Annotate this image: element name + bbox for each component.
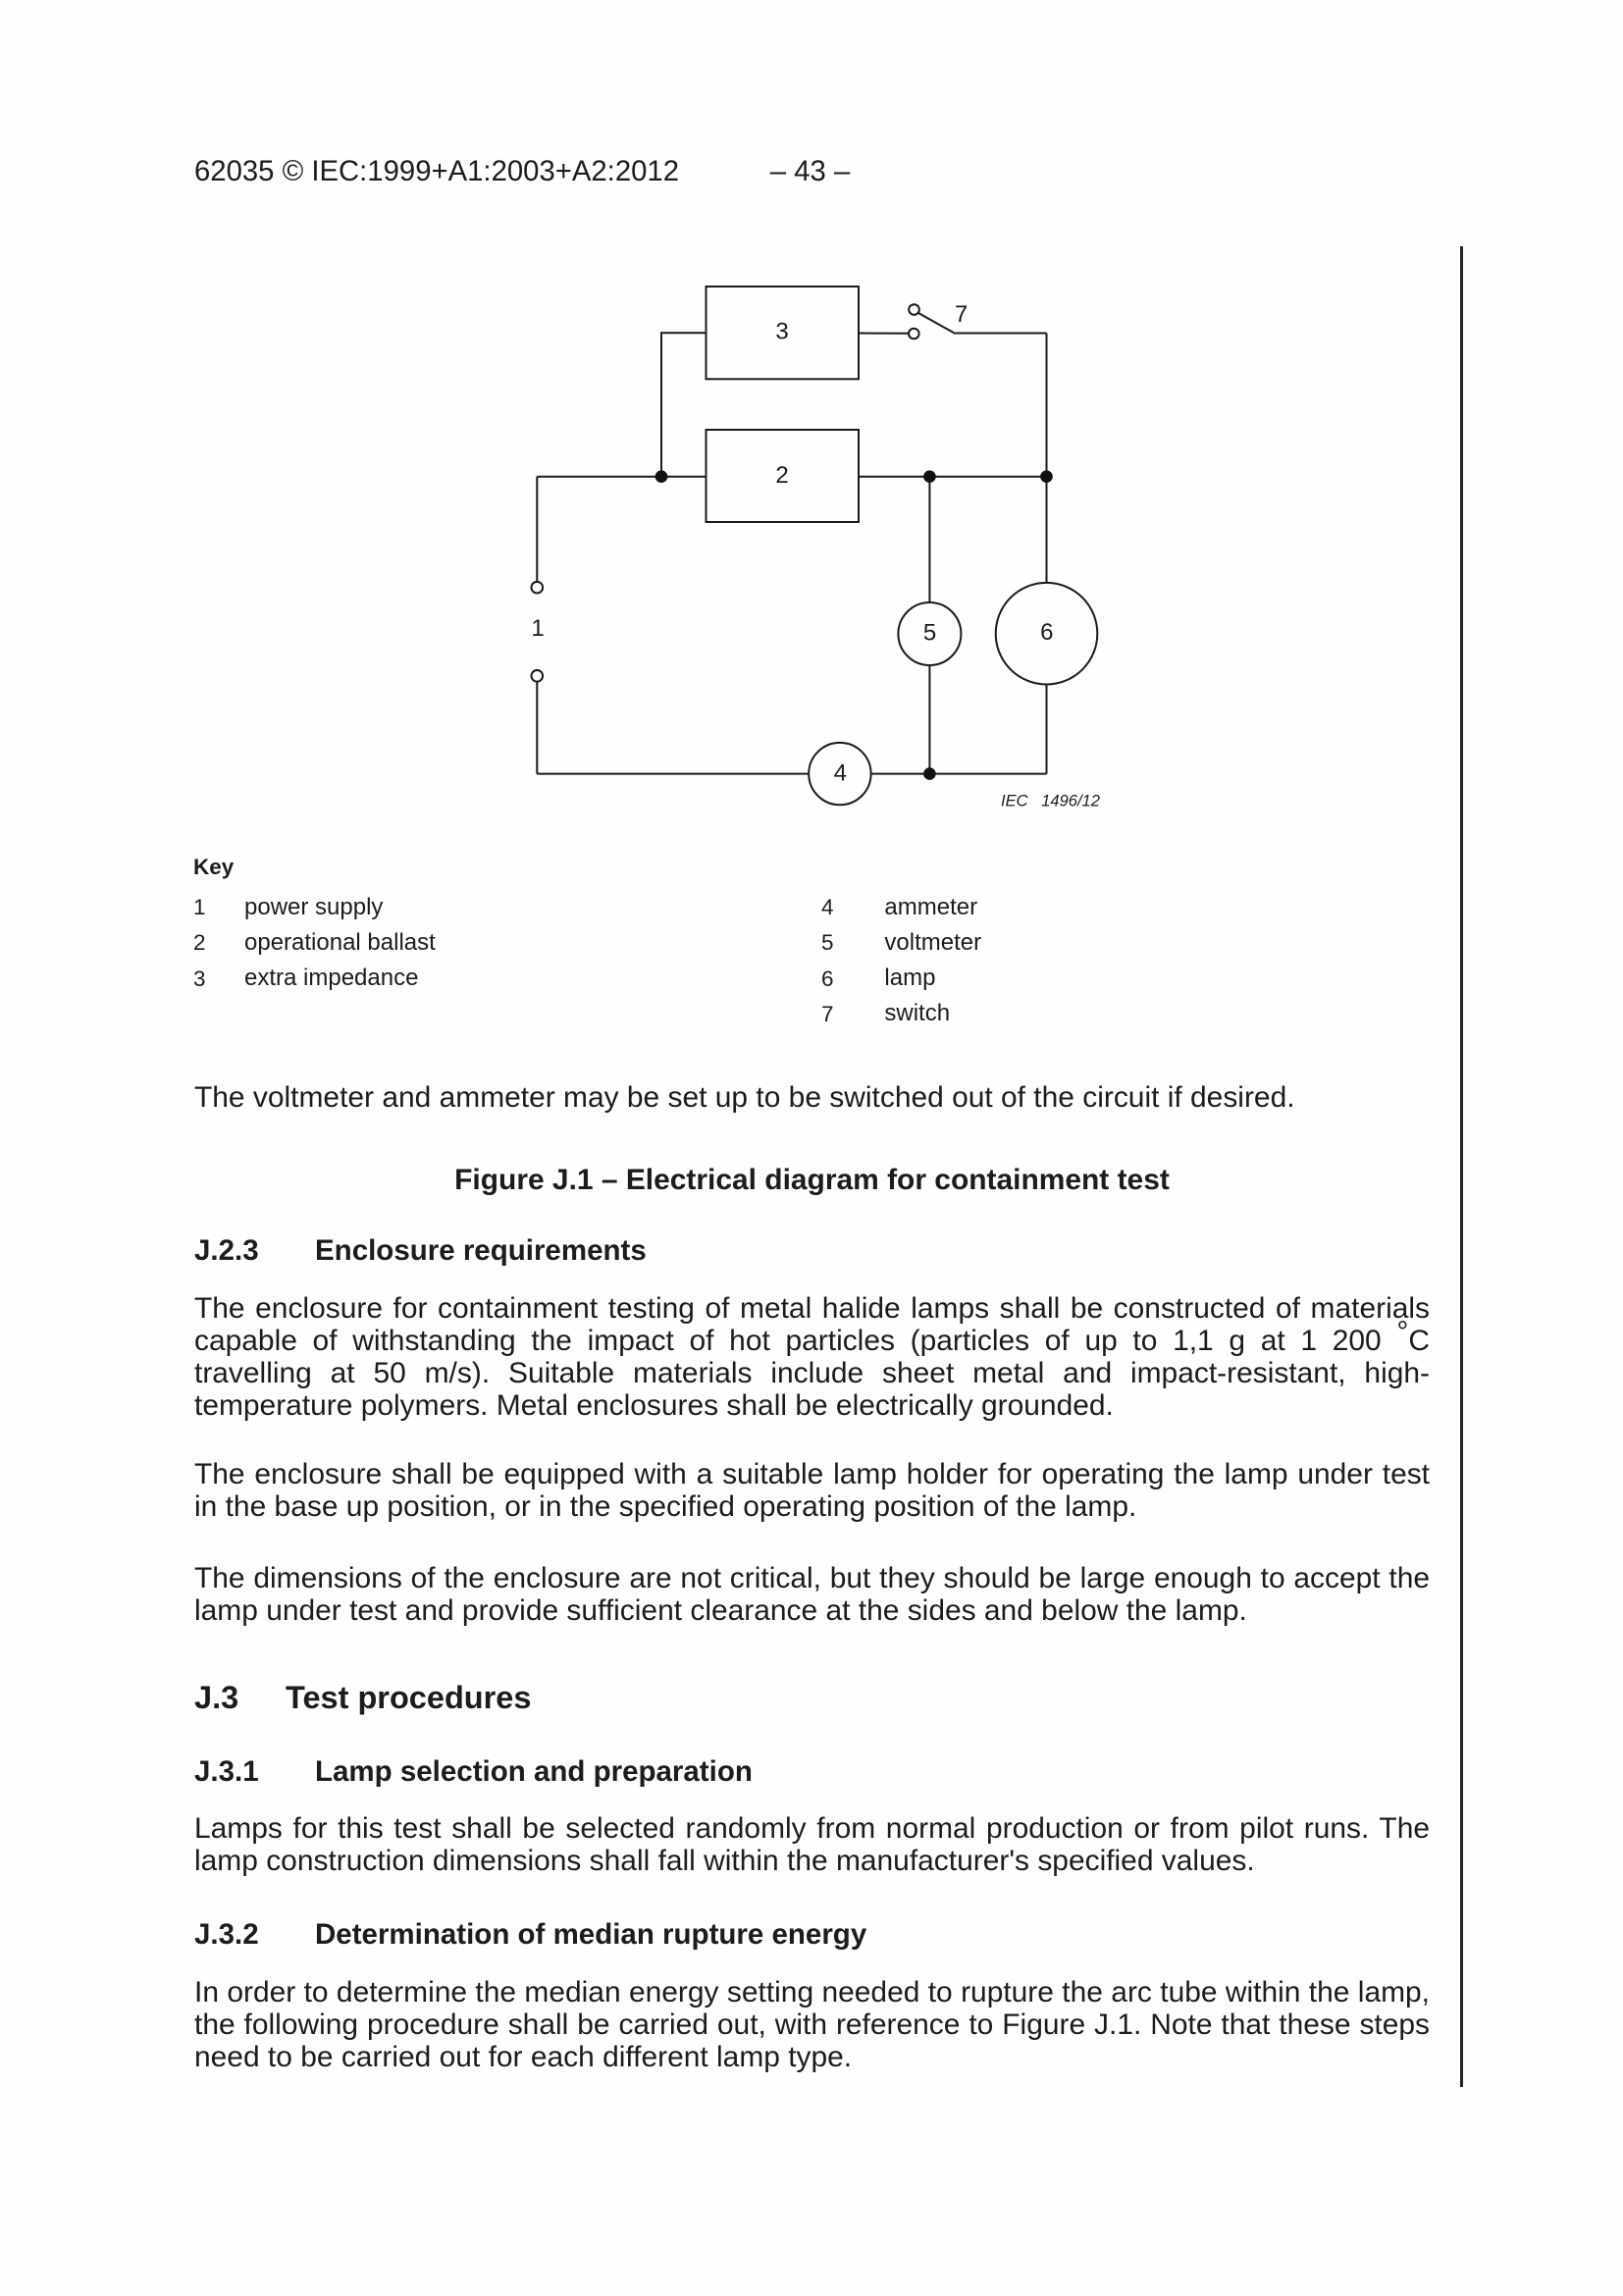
svg-text:2: 2 — [775, 462, 788, 489]
svg-text:4: 4 — [834, 759, 847, 786]
svg-text:7: 7 — [955, 301, 968, 328]
svg-text:5: 5 — [923, 619, 936, 646]
svg-text:6: 6 — [1040, 619, 1053, 646]
svg-text:1: 1 — [531, 615, 544, 642]
svg-text:IEC 1496/12: IEC 1496/12 — [1001, 793, 1100, 810]
svg-text:3: 3 — [775, 318, 788, 344]
